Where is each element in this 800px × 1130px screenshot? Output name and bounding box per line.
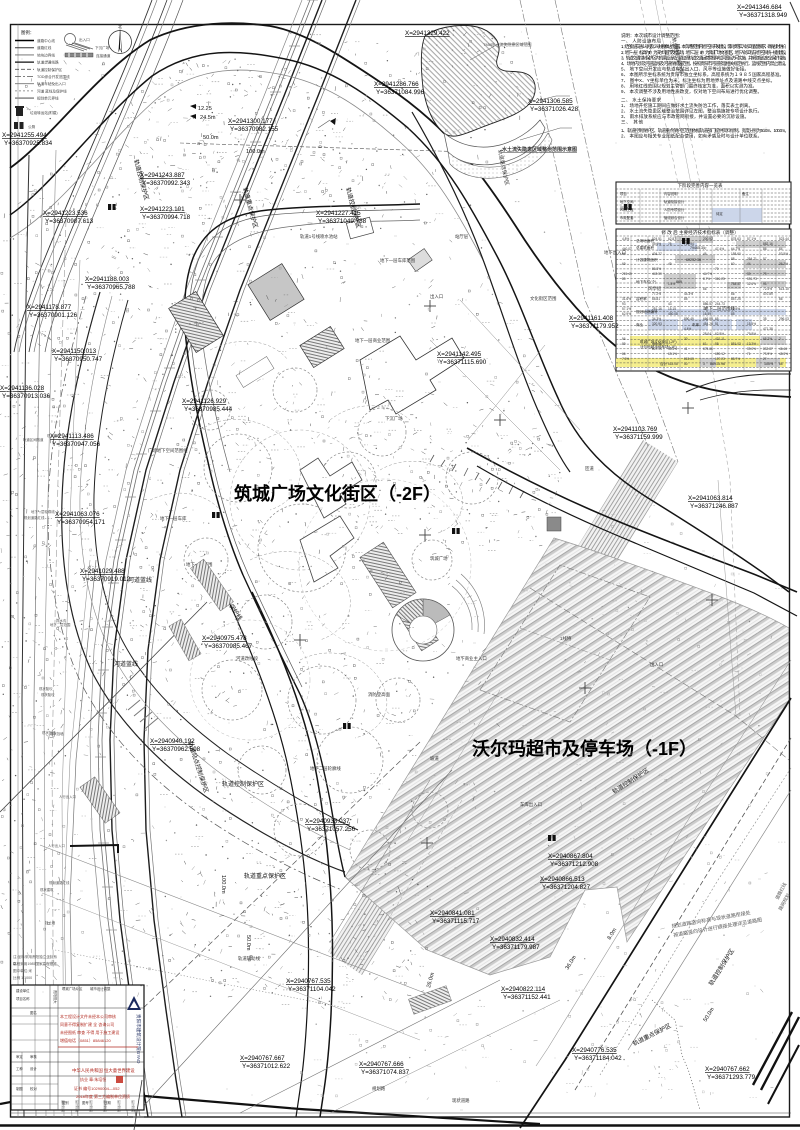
svg-text:524.51: 524.51 bbox=[652, 237, 662, 241]
svg-text:50.0m: 50.0m bbox=[245, 935, 251, 951]
svg-text:40.5%: 40.5% bbox=[668, 347, 677, 351]
svg-text:人防专项设计: 人防专项设计 bbox=[664, 207, 685, 212]
svg-text:Y=36371012.622: Y=36371012.622 bbox=[242, 1063, 291, 1070]
svg-text:30: 30 bbox=[684, 337, 688, 341]
svg-text:市政配套: 市政配套 bbox=[620, 215, 634, 220]
svg-text:车库出入口: 车库出入口 bbox=[520, 801, 542, 808]
svg-text:地下二层范围: 地下二层范围 bbox=[50, 622, 71, 627]
svg-text:70: 70 bbox=[715, 267, 719, 271]
svg-text:内容说明: 内容说明 bbox=[664, 191, 678, 196]
svg-text:地块边界线: 地块边界线 bbox=[37, 52, 55, 57]
svg-text:现状建筑: 现状建筑 bbox=[47, 433, 61, 438]
svg-text:河道蓝线: 河道蓝线 bbox=[114, 660, 138, 668]
svg-text:523.44: 523.44 bbox=[779, 237, 789, 241]
svg-text:证书 编号10290004—052: 证书 编号10290004—052 bbox=[74, 1085, 120, 1091]
svg-text:公厕: 公厕 bbox=[28, 124, 36, 129]
svg-text:Y=36370985.444: Y=36370985.444 bbox=[184, 406, 233, 413]
svg-text:659.12: 659.12 bbox=[715, 352, 725, 356]
svg-text:807.94: 807.94 bbox=[652, 347, 662, 351]
svg-text:431.11: 431.11 bbox=[715, 337, 725, 341]
svg-text:34.3%: 34.3% bbox=[652, 317, 661, 321]
svg-text:157.23: 157.23 bbox=[715, 357, 725, 361]
svg-text:100.0m: 100.0m bbox=[246, 149, 265, 155]
svg-text:`12.25: `12.25 bbox=[196, 106, 212, 112]
svg-text:地下二层轮廓线: 地下二层轮廓线 bbox=[310, 765, 341, 772]
svg-text:现状陡坎: 现状陡坎 bbox=[39, 686, 53, 691]
svg-text:79: 79 bbox=[763, 272, 767, 276]
svg-text:Y=36371179.952: Y=36371179.952 bbox=[571, 323, 619, 330]
svg-text:882.16: 882.16 bbox=[763, 242, 773, 246]
svg-text:X=2941346.684: X=2941346.684 bbox=[737, 4, 782, 11]
svg-text:本工程设计文件未经本公司审核: 本工程设计文件未经本公司审核 bbox=[60, 1013, 116, 1019]
svg-text:人行出入口: 人行出入口 bbox=[59, 794, 76, 799]
svg-text:道路红线: 道路红线 bbox=[37, 45, 52, 50]
svg-text:坡道: 坡道 bbox=[430, 755, 439, 762]
svg-text:Y=36370954.171: Y=36370954.171 bbox=[57, 519, 106, 526]
svg-text:4.4%: 4.4% bbox=[684, 327, 691, 331]
svg-text:2: 2 bbox=[779, 337, 781, 341]
svg-text:挡土墙: 挡土墙 bbox=[45, 920, 56, 925]
svg-text:46: 46 bbox=[703, 252, 707, 256]
svg-text:匝道: 匝道 bbox=[585, 465, 594, 472]
svg-text:454.26: 454.26 bbox=[703, 322, 713, 326]
svg-text:车库: 车库 bbox=[692, 322, 700, 327]
svg-text:河道蓝线: 河道蓝线 bbox=[128, 576, 152, 584]
svg-text:图号: 图号 bbox=[82, 1100, 89, 1105]
svg-text:675.66: 675.66 bbox=[703, 347, 713, 351]
svg-text:86.3%: 86.3% bbox=[652, 267, 661, 271]
svg-text:60: 60 bbox=[731, 262, 735, 266]
svg-text:815.63: 815.63 bbox=[684, 357, 694, 361]
svg-text:Y=36371084.996: Y=36371084.996 bbox=[376, 89, 425, 96]
svg-text:51: 51 bbox=[715, 322, 719, 326]
svg-text:62.8%: 62.8% bbox=[715, 332, 724, 336]
svg-text:项目名称: 项目名称 bbox=[16, 996, 30, 1001]
svg-text:35: 35 bbox=[763, 317, 767, 321]
svg-text:296.03: 296.03 bbox=[779, 317, 789, 321]
svg-text:869: 869 bbox=[676, 280, 682, 284]
svg-text:Y=36371115.717: Y=36371115.717 bbox=[432, 918, 480, 925]
svg-text:100.0m: 100.0m bbox=[220, 875, 226, 894]
svg-text:404.27: 404.27 bbox=[652, 252, 662, 256]
svg-text:设计: 设计 bbox=[30, 1066, 37, 1071]
svg-text:85: 85 bbox=[622, 277, 626, 281]
svg-text:68: 68 bbox=[779, 362, 783, 366]
svg-text:设计阶段: 设计阶段 bbox=[75, 1100, 80, 1112]
svg-text:531.73: 531.73 bbox=[747, 277, 757, 281]
svg-text:47.4%: 47.4% bbox=[715, 247, 724, 251]
svg-text:75: 75 bbox=[668, 242, 672, 246]
svg-text:设计阶段: 设计阶段 bbox=[117, 1100, 122, 1112]
svg-text:X=2941286.766: X=2941286.766 bbox=[374, 81, 419, 88]
svg-text:24.5m: 24.5m bbox=[200, 115, 216, 121]
svg-text:450.08: 450.08 bbox=[668, 312, 678, 316]
svg-text:地下一层车库范围: 地下一层车库范围 bbox=[380, 257, 416, 264]
svg-text:校对: 校对 bbox=[30, 1086, 37, 1091]
svg-text:风亭: 风亭 bbox=[620, 205, 629, 212]
svg-text:中华人民共和国 恒大童世界建设: 中华人民共和国 恒大童世界建设 bbox=[72, 1067, 135, 1074]
svg-text:Y=36371074.837: Y=36371074.837 bbox=[361, 1069, 410, 1076]
svg-text:28.04: 28.04 bbox=[703, 332, 711, 336]
svg-text:69: 69 bbox=[622, 262, 626, 266]
svg-text:95: 95 bbox=[763, 282, 767, 286]
svg-text:连接通道: 连接通道 bbox=[96, 53, 111, 58]
svg-text:日期: 日期 bbox=[104, 1100, 111, 1105]
svg-text:沃尔玛超市及停车场（-1F）: 沃尔玛超市及停车场（-1F） bbox=[472, 738, 697, 759]
svg-text:容积率: 容积率 bbox=[636, 296, 647, 301]
svg-text:88: 88 bbox=[731, 257, 735, 261]
svg-text:65: 65 bbox=[715, 317, 719, 321]
svg-text:城市设计调整: 城市设计调整 bbox=[90, 986, 111, 991]
svg-text:41: 41 bbox=[684, 347, 688, 351]
svg-text:道路中心线: 道路中心线 bbox=[37, 38, 55, 43]
svg-text:设计阶段: 设计阶段 bbox=[89, 1100, 94, 1112]
svg-text:27: 27 bbox=[763, 357, 767, 361]
svg-text:79.8%: 79.8% bbox=[747, 332, 756, 336]
svg-text:轨道交通线路: 轨道交通线路 bbox=[37, 60, 59, 65]
svg-text:15.15: 15.15 bbox=[668, 307, 676, 311]
svg-text:50: 50 bbox=[684, 362, 688, 366]
svg-text:Y=36371026.428: Y=36371026.428 bbox=[530, 106, 579, 113]
svg-text:X=2941161.408: X=2941161.408 bbox=[569, 315, 614, 322]
svg-text:7.5%: 7.5% bbox=[622, 357, 629, 361]
svg-text:31.6%: 31.6% bbox=[622, 297, 631, 301]
svg-text:Y=36371057.256: Y=36371057.256 bbox=[307, 826, 356, 833]
svg-text:审核: 审核 bbox=[30, 1054, 37, 1059]
svg-text:Y=36370992.343: Y=36370992.343 bbox=[142, 180, 191, 187]
svg-text:Y=36371115.690: Y=36371115.690 bbox=[439, 359, 487, 366]
svg-text:44.3%: 44.3% bbox=[684, 292, 693, 296]
svg-text:商业: 商业 bbox=[636, 322, 644, 327]
svg-text:61: 61 bbox=[703, 342, 707, 346]
svg-text:50.0m: 50.0m bbox=[203, 135, 219, 141]
svg-text:857.25: 857.25 bbox=[731, 297, 741, 301]
svg-text:轨道重点保护区: 轨道重点保护区 bbox=[244, 872, 286, 880]
svg-text:Y=36370913.036: Y=36370913.036 bbox=[2, 393, 51, 400]
svg-text:57: 57 bbox=[763, 257, 767, 261]
svg-text:46.46: 46.46 bbox=[779, 347, 787, 351]
svg-text:X=2940975.478: X=2940975.478 bbox=[202, 635, 247, 642]
svg-text:784.57: 784.57 bbox=[731, 282, 741, 286]
svg-text:77.2%: 77.2% bbox=[652, 292, 661, 296]
svg-text:9、 本次调整不涉及用地性质改变，仅对地下空间布局进行优化调: 9、 本次调整不涉及用地性质改变，仅对地下空间布局进行优化调整。 bbox=[621, 88, 762, 95]
svg-text:X=2941126.929: X=2941126.929 bbox=[182, 398, 227, 405]
svg-text:251.16: 251.16 bbox=[652, 307, 662, 311]
svg-text:X=2941300.177: X=2941300.177 bbox=[228, 118, 273, 125]
svg-text:832.87: 832.87 bbox=[763, 347, 773, 351]
svg-text:消防登高面: 消防登高面 bbox=[368, 691, 391, 698]
svg-text:86: 86 bbox=[763, 247, 767, 251]
svg-text:88.7%: 88.7% bbox=[731, 357, 740, 361]
svg-text:筑城广场片区: 筑城广场片区 bbox=[62, 986, 83, 991]
svg-text:建设单位: 建设单位 bbox=[16, 988, 30, 993]
svg-text:Y=36370950.747: Y=36370950.747 bbox=[54, 356, 103, 363]
svg-text:Y=36371212.908: Y=36371212.908 bbox=[550, 861, 599, 868]
svg-text:X=2940767.667: X=2940767.667 bbox=[240, 1055, 285, 1062]
svg-text:图名: 图名 bbox=[30, 1010, 37, 1015]
svg-text:Y=36371246.887: Y=36371246.887 bbox=[690, 503, 739, 510]
svg-text:轨道1号线喷水池站: 轨道1号线喷水池站 bbox=[300, 233, 338, 240]
svg-text:TOD综合开发范围线: TOD综合开发范围线 bbox=[37, 74, 70, 79]
svg-text:地下出入口: 地下出入口 bbox=[604, 249, 626, 256]
svg-text:96: 96 bbox=[622, 337, 626, 341]
svg-text:65.81: 65.81 bbox=[652, 297, 660, 301]
svg-text:16.59: 16.59 bbox=[703, 312, 711, 316]
svg-text:39.0%: 39.0% bbox=[747, 347, 756, 351]
svg-text:471.38: 471.38 bbox=[763, 327, 773, 331]
svg-text:管线综合设计: 管线综合设计 bbox=[664, 215, 685, 220]
svg-text:X=2940767.662: X=2940767.662 bbox=[705, 1066, 750, 1073]
svg-text:443.50: 443.50 bbox=[652, 272, 662, 276]
svg-text:15.5%: 15.5% bbox=[747, 322, 756, 326]
svg-text:1线特: 1线特 bbox=[560, 635, 572, 641]
svg-text:13.3%: 13.3% bbox=[747, 342, 756, 346]
svg-text:86915.96: 86915.96 bbox=[710, 362, 725, 366]
svg-text:48.3%: 48.3% bbox=[779, 352, 788, 356]
svg-text:158.60: 158.60 bbox=[731, 252, 741, 256]
svg-text:1.4%: 1.4% bbox=[668, 282, 675, 286]
svg-text:工种: 工种 bbox=[16, 1066, 23, 1071]
svg-text:32.6%: 32.6% bbox=[747, 282, 756, 286]
svg-text:470.89: 470.89 bbox=[763, 292, 773, 296]
svg-text:图别: 图别 bbox=[62, 1100, 69, 1105]
svg-text:49.6%: 49.6% bbox=[652, 242, 661, 246]
svg-text:Y=36370985.467: Y=36370985.467 bbox=[204, 643, 253, 650]
svg-text:43: 43 bbox=[668, 302, 672, 306]
svg-text:Y=36370907.613: Y=36370907.613 bbox=[45, 218, 94, 225]
svg-text:项目: 项目 bbox=[620, 192, 627, 196]
svg-text:增值电话（0851）85846120: 增值电话（0851）85846120 bbox=[60, 1037, 111, 1043]
svg-text:Y=36371204.827: Y=36371204.827 bbox=[542, 884, 591, 891]
svg-text:89: 89 bbox=[622, 342, 626, 346]
svg-text:X=2941329.422: X=2941329.422 bbox=[405, 30, 450, 37]
svg-text:现状陡坎: 现状陡坎 bbox=[41, 692, 55, 697]
svg-text:62.87: 62.87 bbox=[668, 237, 676, 241]
svg-text:X=2940776.535: X=2940776.535 bbox=[572, 1047, 617, 1054]
svg-text:30: 30 bbox=[747, 272, 751, 276]
svg-text:Y=36371318.949: Y=36371318.949 bbox=[739, 12, 788, 19]
svg-text:出入口: 出入口 bbox=[430, 293, 443, 300]
svg-text:8.7%: 8.7% bbox=[703, 277, 710, 281]
svg-text:轨道车站及出入口: 轨道车站及出入口 bbox=[37, 81, 66, 86]
svg-text:73.9%: 73.9% bbox=[763, 352, 772, 356]
svg-text:72.5%: 72.5% bbox=[763, 287, 772, 291]
svg-text:X=2940938.037: X=2940938.037 bbox=[305, 818, 350, 825]
svg-text:77: 77 bbox=[703, 247, 707, 251]
svg-text:Y=36370901.126: Y=36370901.126 bbox=[29, 312, 78, 319]
svg-text:河道 蓝线及保护线: 河道 蓝线及保护线 bbox=[37, 88, 67, 93]
svg-text:666.80: 666.80 bbox=[703, 317, 713, 321]
svg-text:X=2940867.804: X=2940867.804 bbox=[548, 853, 593, 860]
svg-text:320.93: 320.93 bbox=[652, 322, 662, 326]
svg-text:65.2%: 65.2% bbox=[763, 337, 772, 341]
svg-text:57.1%: 57.1% bbox=[622, 307, 631, 311]
svg-text:100%: 100% bbox=[764, 362, 774, 366]
svg-text:53.5%: 53.5% bbox=[779, 252, 788, 256]
svg-text:890.49: 890.49 bbox=[684, 317, 694, 321]
svg-text:36.2%: 36.2% bbox=[779, 262, 788, 266]
svg-text:下沉广场: 下沉广场 bbox=[95, 45, 110, 50]
svg-text:44: 44 bbox=[747, 262, 751, 266]
svg-text:44.7%: 44.7% bbox=[703, 272, 712, 276]
svg-text:规划路: 规划路 bbox=[372, 1085, 386, 1092]
svg-text:Y=36371104.042: Y=36371104.042 bbox=[288, 986, 336, 993]
svg-text:规划道路红线: 规划道路红线 bbox=[24, 515, 45, 520]
svg-text:站厅层: 站厅层 bbox=[455, 233, 469, 240]
svg-text:图例：: 图例： bbox=[21, 29, 34, 36]
svg-text:Y=36371293.779: Y=36371293.779 bbox=[707, 1074, 756, 1081]
svg-text:64: 64 bbox=[779, 247, 783, 251]
svg-text:4.8%: 4.8% bbox=[622, 237, 629, 241]
svg-text:地下一层轮廓线: 地下一层轮廓线 bbox=[31, 509, 55, 514]
svg-text:X=2940767.666: X=2940767.666 bbox=[359, 1061, 404, 1068]
svg-text:93: 93 bbox=[622, 302, 626, 306]
svg-text:X=2940822.114: X=2940822.114 bbox=[501, 986, 546, 993]
svg-text:66: 66 bbox=[779, 297, 783, 301]
svg-text:出入口: 出入口 bbox=[650, 661, 663, 668]
svg-text:Y=36370982.155: Y=36370982.155 bbox=[230, 126, 279, 133]
svg-text:851.03: 851.03 bbox=[731, 342, 741, 346]
svg-text:贵阳市建筑设计院GYAD: 贵阳市建筑设计院GYAD bbox=[135, 1014, 142, 1064]
svg-text:X=2941063.814: X=2941063.814 bbox=[688, 495, 733, 502]
svg-text:现状建筑: 现状建筑 bbox=[40, 887, 54, 892]
svg-text:2、 本图应与相关专业图纸配合使用，如有矛盾及时与设计单位联: 2、 本图应与相关专业图纸配合使用，如有矛盾及时与设计单位联系。 bbox=[621, 133, 762, 140]
svg-text:同意不得复制扩建 全 咨询公司: 同意不得复制扩建 全 咨询公司 bbox=[60, 1021, 114, 1027]
svg-text:878.63: 878.63 bbox=[731, 237, 741, 241]
svg-text:85: 85 bbox=[684, 297, 688, 301]
svg-text:215.45: 215.45 bbox=[622, 272, 632, 276]
svg-text:Y=36370925.834: Y=36370925.834 bbox=[4, 140, 53, 147]
svg-text:Y=36371179.987: Y=36371179.987 bbox=[492, 944, 540, 951]
svg-text:X=2941103.769: X=2941103.769 bbox=[613, 426, 658, 433]
svg-text:X=2941223.536: X=2941223.536 bbox=[43, 210, 88, 217]
svg-text:比例 1:1000: 比例 1:1000 bbox=[13, 975, 32, 980]
svg-text:地下二层范围线: 地下二层范围线 bbox=[704, 305, 735, 312]
svg-text:Y=36370965.788: Y=36370965.788 bbox=[87, 284, 136, 291]
svg-text:Y=36370919.012: Y=36370919.012 bbox=[82, 576, 131, 583]
svg-text:人行出入口: 人行出入口 bbox=[48, 843, 65, 848]
svg-text:地下一层商业范围: 地下一层商业范围 bbox=[355, 337, 391, 344]
svg-text:修 改 后 主要经济技术指标表（调整）: 修 改 后 主要经济技术指标表（调整） bbox=[661, 229, 738, 236]
svg-text:85: 85 bbox=[731, 312, 735, 316]
svg-text:71: 71 bbox=[747, 352, 751, 356]
svg-text:200.92: 200.92 bbox=[703, 237, 713, 241]
svg-text:轨道控制保护区: 轨道控制保护区 bbox=[222, 780, 264, 788]
svg-text:下阶段完善内容一览表: 下阶段完善内容一览表 bbox=[678, 182, 723, 189]
svg-text:464.88: 464.88 bbox=[652, 342, 662, 346]
svg-text:63.1%: 63.1% bbox=[668, 352, 677, 356]
svg-text:X=2941188.003: X=2941188.003 bbox=[85, 276, 130, 283]
svg-text:57.1%: 57.1% bbox=[747, 237, 756, 241]
svg-text:X=2941306.585: X=2941306.585 bbox=[528, 98, 573, 105]
svg-text:66: 66 bbox=[703, 287, 707, 291]
svg-text:备注: 备注 bbox=[742, 191, 749, 196]
svg-text:地下车位(个): 地下车位(个) bbox=[636, 279, 656, 284]
svg-text:58: 58 bbox=[715, 342, 719, 346]
svg-text:X=2940866.513: X=2940866.513 bbox=[540, 876, 585, 883]
svg-text:地下一层车库: 地下一层车库 bbox=[160, 515, 187, 522]
svg-text:计容建筑面积: 计容建筑面积 bbox=[636, 257, 658, 262]
svg-text:待定: 待定 bbox=[716, 211, 723, 216]
svg-text:2018年度 第三方编制单位资质: 2018年度 第三方编制单位资质 bbox=[76, 1093, 130, 1099]
svg-text:X=2941136.028: X=2941136.028 bbox=[0, 385, 45, 392]
svg-text:轨道控制保护区: 轨道控制保护区 bbox=[37, 67, 63, 72]
svg-text:贵阳恒大: 贵阳恒大 bbox=[53, 990, 58, 1004]
svg-text:X=2941223.101: X=2941223.101 bbox=[140, 206, 185, 213]
svg-text:Y=36371184.042: Y=36371184.042 bbox=[574, 1055, 622, 1062]
svg-text:X=2940832.414: X=2940832.414 bbox=[490, 936, 535, 943]
svg-text:64.7%: 64.7% bbox=[731, 247, 740, 251]
svg-text:轨道衔接设计: 轨道衔接设计 bbox=[664, 199, 685, 204]
svg-text:北: 北 bbox=[118, 23, 122, 29]
svg-text:Y=36370994.718: Y=36370994.718 bbox=[142, 214, 191, 221]
svg-text:X=2940841.081: X=2940841.081 bbox=[430, 910, 475, 917]
svg-text:66: 66 bbox=[622, 352, 626, 356]
svg-text:下沉广场: 下沉广场 bbox=[385, 415, 403, 422]
svg-text:X=2940767.535: X=2940767.535 bbox=[286, 978, 331, 985]
svg-text:规划单元界线: 规划单元界线 bbox=[37, 96, 59, 101]
svg-text:66: 66 bbox=[731, 292, 735, 296]
svg-text:Y=36371152.441: Y=36371152.441 bbox=[503, 994, 551, 1001]
svg-text:现状道路: 现状道路 bbox=[452, 1097, 470, 1104]
svg-text:Y=36370947.056: Y=36370947.056 bbox=[52, 441, 101, 448]
svg-text:筑城广场文化街区（-2F）: 筑城广场文化街区（-2F） bbox=[234, 483, 441, 504]
svg-text:图中单位:米: 图中单位:米 bbox=[13, 968, 32, 973]
svg-text:合计: 合计 bbox=[660, 361, 668, 366]
svg-text:361.25: 361.25 bbox=[715, 277, 725, 281]
svg-text:风亭组: 风亭组 bbox=[648, 285, 662, 292]
svg-text:执业 章:朱培恒: 执业 章:朱培恒 bbox=[80, 1076, 106, 1082]
svg-text:614.10: 614.10 bbox=[779, 287, 789, 291]
svg-text:河道改线段: 河道改线段 bbox=[236, 655, 259, 662]
svg-text:文化街区范围: 文化街区范围 bbox=[530, 295, 557, 302]
svg-text:X=2941178.877: X=2941178.877 bbox=[27, 304, 72, 311]
svg-text:三、 其他: 三、 其他 bbox=[621, 119, 644, 126]
svg-text:354.71: 354.71 bbox=[747, 257, 757, 261]
svg-text:60232.36: 60232.36 bbox=[686, 258, 701, 262]
svg-text:垃圾转运站(附建): 垃圾转运站(附建) bbox=[30, 110, 58, 115]
svg-text:制图: 制图 bbox=[16, 1086, 23, 1091]
svg-text:X=2941150.013: X=2941150.013 bbox=[52, 348, 97, 355]
svg-text:审定: 审定 bbox=[16, 1054, 23, 1059]
svg-text:618.08: 618.08 bbox=[668, 362, 678, 366]
svg-text:49: 49 bbox=[668, 262, 672, 266]
svg-text:水土流失隐患区域整治范围示意图: 水土流失隐患区域整治范围示意图 bbox=[501, 146, 577, 153]
svg-text:轨道区间隧道: 轨道区间隧道 bbox=[23, 437, 44, 442]
svg-text:3: 3 bbox=[703, 362, 705, 366]
svg-text:出入口: 出入口 bbox=[79, 37, 90, 42]
svg-text:高程采用1985国家高程基准: 高程采用1985国家高程基准 bbox=[13, 961, 57, 966]
svg-text:地下商业主入口: 地下商业主入口 bbox=[456, 655, 487, 662]
svg-text:筑城广场: 筑城广场 bbox=[430, 555, 448, 562]
svg-text:X=2941142.495: X=2941142.495 bbox=[437, 351, 482, 358]
svg-text:未经图纸 审查 不得 用于施工建设: 未经图纸 审查 不得 用于施工建设 bbox=[60, 1029, 119, 1035]
svg-text:设计阶段: 设计阶段 bbox=[131, 1100, 136, 1112]
svg-text:62.9%: 62.9% bbox=[622, 312, 631, 316]
svg-text:广场地下空间范围线: 广场地下空间范围线 bbox=[148, 447, 188, 454]
svg-text:现状挡墙: 现状挡墙 bbox=[50, 731, 64, 736]
svg-text:Y=36371159.999: Y=36371159.999 bbox=[615, 434, 663, 441]
svg-text:地下空间: 地下空间 bbox=[620, 199, 634, 204]
svg-text:X=2941255.494: X=2941255.494 bbox=[2, 132, 47, 139]
